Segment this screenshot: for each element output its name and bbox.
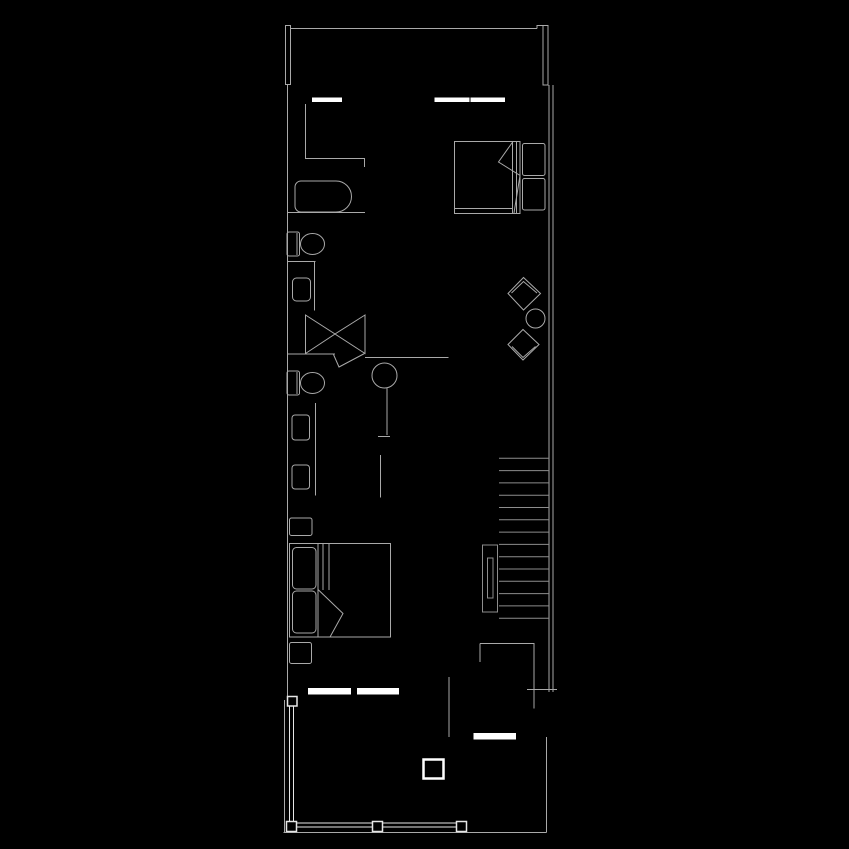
terrace-wall-segment [357,688,399,695]
terrace-wall-segment [474,733,517,740]
facade-wall-segment [312,98,342,103]
railing-post [457,822,467,832]
floor-plan-stage [0,0,849,849]
facade-wall-segment [435,98,470,103]
floor-plan-canvas [0,0,849,849]
railing-post [373,822,383,832]
terrace-wall-segment [308,688,351,695]
background [0,0,849,849]
facade-wall-segment [471,98,506,103]
railing-post [287,822,297,832]
railing-post [288,697,298,707]
